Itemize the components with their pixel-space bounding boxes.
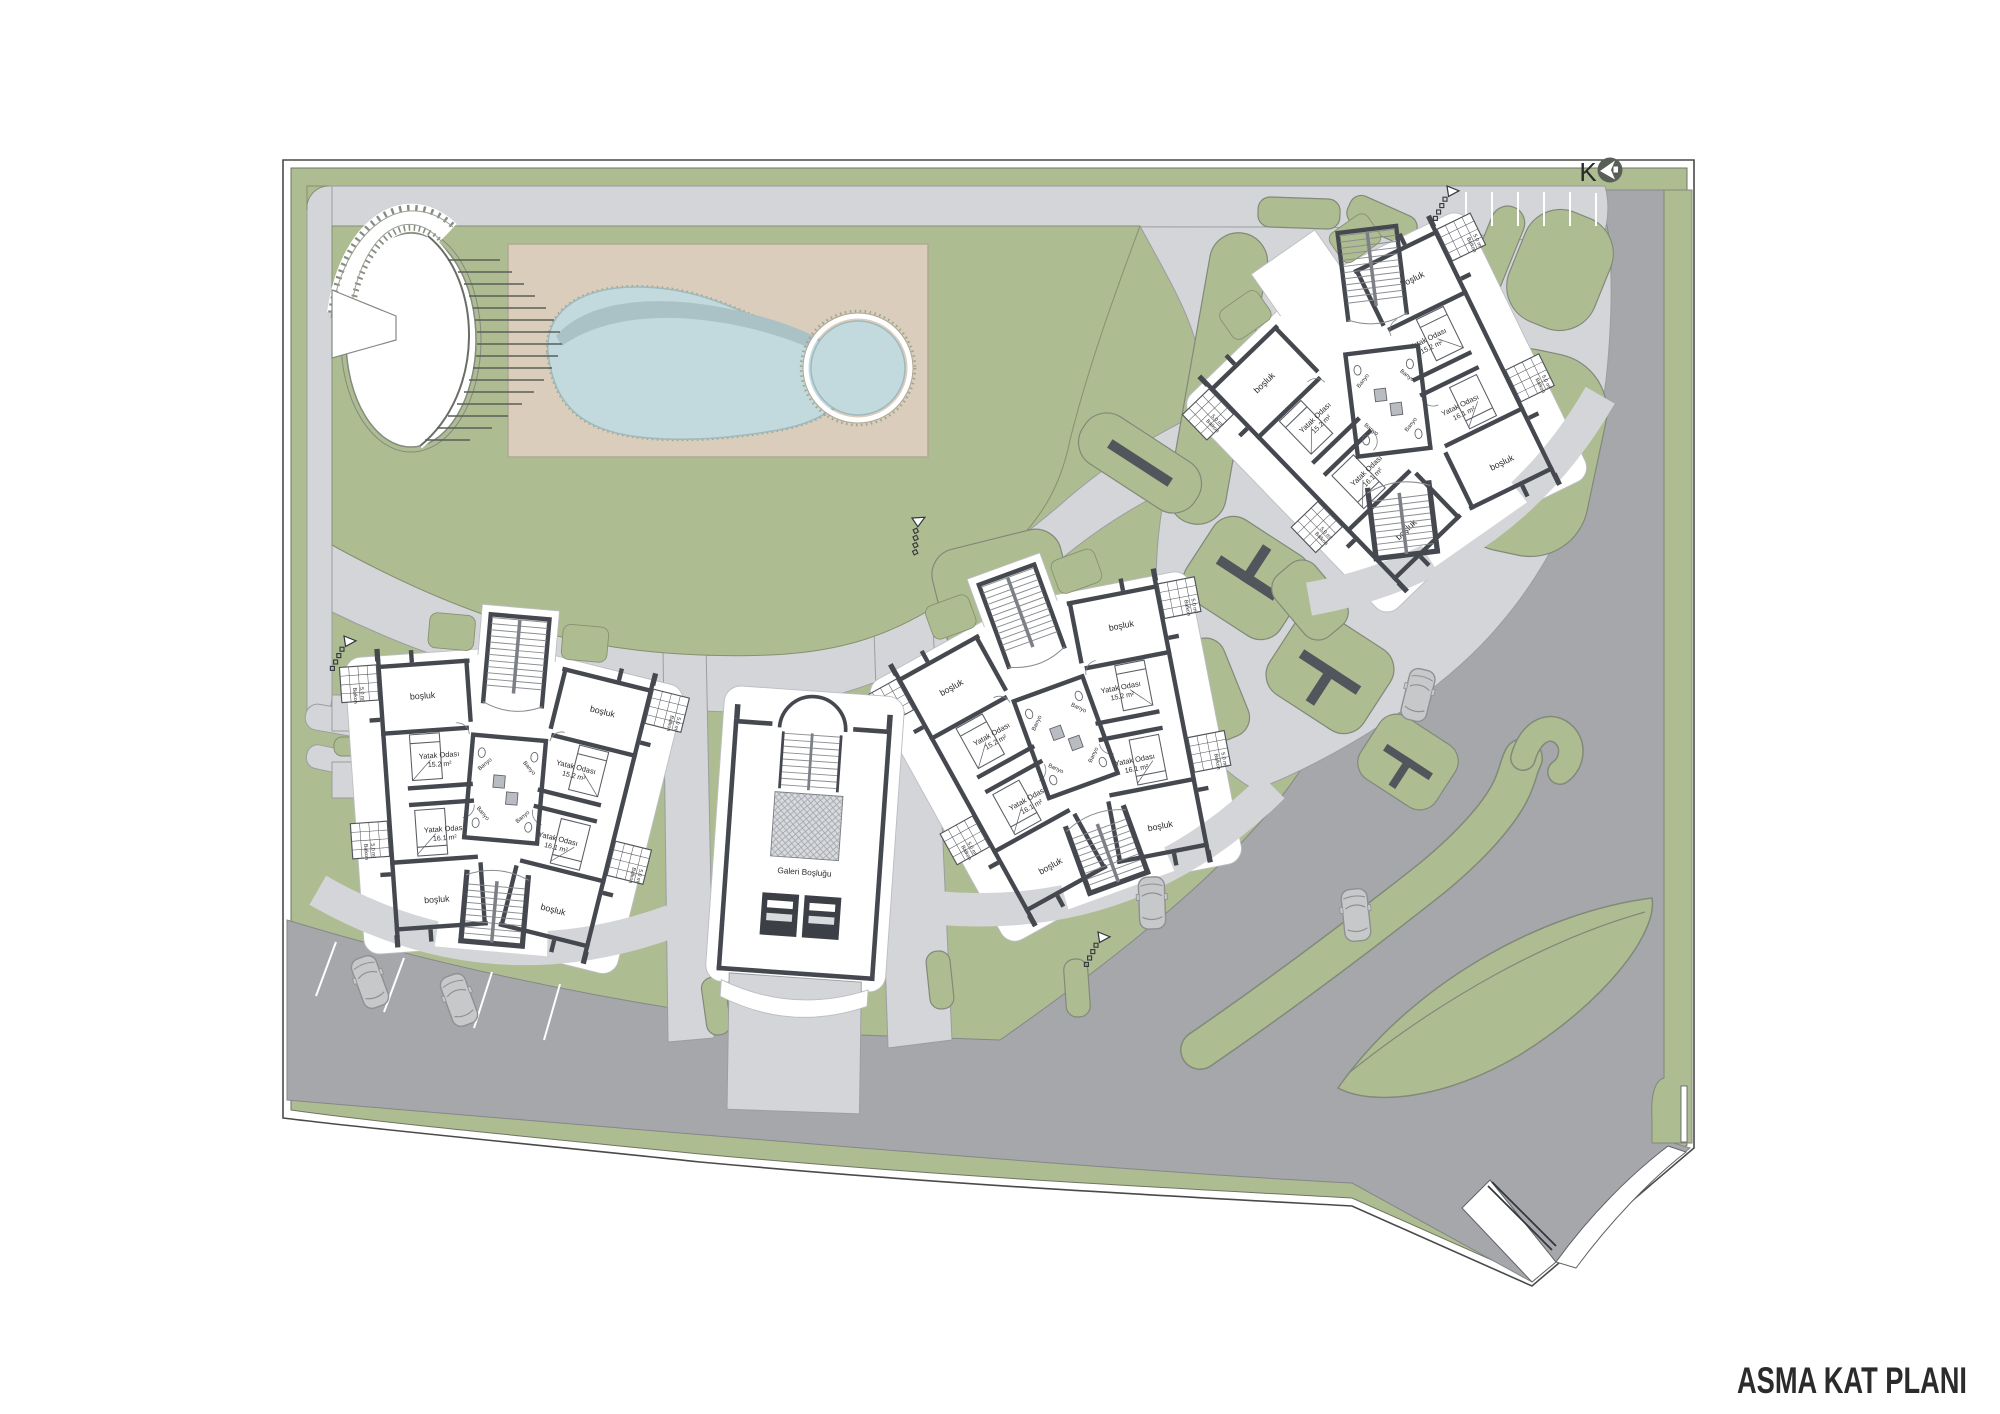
- svg-text:ASMA KAT PLANI: ASMA KAT PLANI: [1737, 1360, 1967, 1401]
- svg-text:K: K: [1579, 157, 1597, 187]
